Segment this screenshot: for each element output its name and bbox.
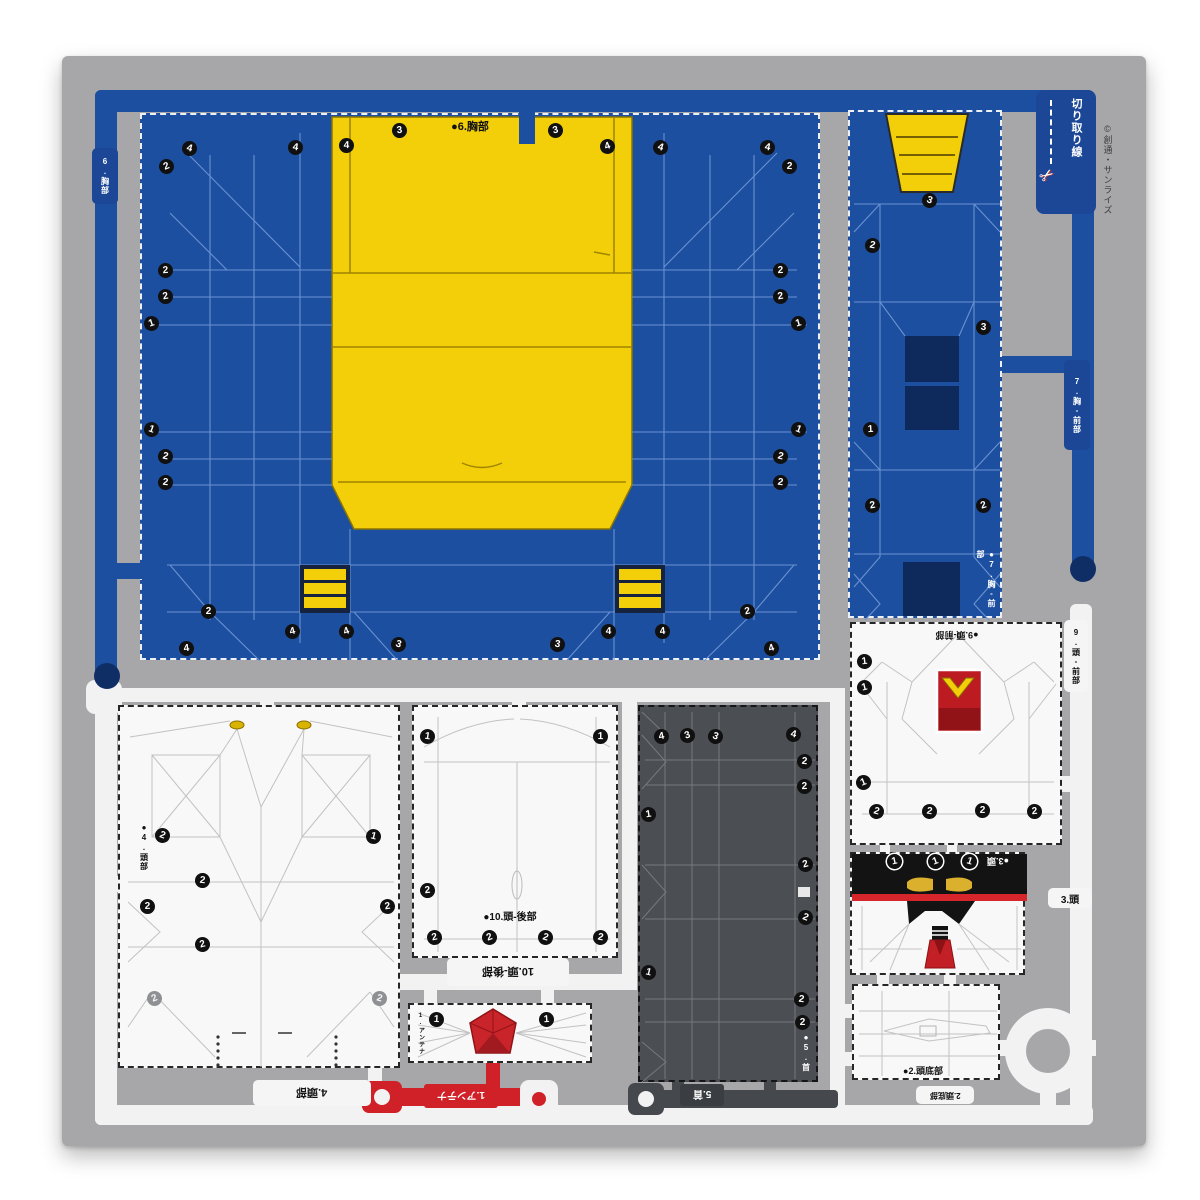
piece-chest-front [848,110,1002,618]
tab-head-part-label: 4.頭部 [296,1085,327,1101]
runner-ring [1005,1008,1091,1094]
neck-runner-plate: 5.首 [680,1084,724,1106]
label-head-back: ●10.頭-後部 [455,908,565,922]
cut-line-label: 切り取り線 [1068,98,1084,206]
runner-stub-left [112,563,144,579]
runner-white-mid [830,688,845,1108]
number-marker: 2 [795,1015,810,1030]
label-neck: ●5.首 [799,1028,813,1076]
tab-chest-front-label: 7.胸-前部 [1072,377,1083,434]
runner-white-bottom [95,1105,1093,1125]
piece-head-part [118,705,400,1068]
ring-stub-bottom [1040,1088,1056,1108]
tab-head-part: 4.頭部 [253,1080,371,1106]
label-antenna-tiny: 1.アンテナ [416,1012,426,1056]
tab-head-bottom-label: 2.頭底部 [930,1090,961,1101]
label-chest-front: ●7.胸-前部 [978,550,994,616]
fold-lines-neck [640,707,820,1084]
antenna-runner-label: 1.アンテナ [437,1089,485,1104]
scissors-icon: ✂ [1036,164,1059,189]
label-head-face: ●3.頭 [975,856,1021,868]
piece-neck [638,705,818,1082]
red-connector-dot [532,1092,546,1106]
runner-white-top [95,688,845,702]
tab-chest: 6.胸部 [92,148,118,204]
fold-lines-head-part [120,707,402,1070]
piece-head-face [850,852,1025,975]
copyright-text: ©創通・サンライズ [1100,94,1116,244]
fold-lines-chest [142,115,822,662]
cut-line-tab: ✂ 切り取り線 [1036,90,1096,214]
tab-head-back: 10.頭-後部 [447,958,569,986]
tab-head-back-label: 10.頭-後部 [482,964,534,980]
runner-dark-bar [640,1090,838,1108]
red-cap-hole [374,1089,390,1105]
tab-head-bottom: 2.頭底部 [916,1086,974,1104]
stub-w12 [840,1052,852,1066]
face-art [852,854,1027,977]
tab-head-front: 9.頭-前部 [1064,620,1088,692]
number-marker: 2 [201,604,216,619]
runner-white-left [95,688,117,1125]
stub-w11 [840,1004,852,1018]
antenna-runner-plate: 1.アンテナ [424,1084,498,1108]
label-head-front: ●9.頭-前部 [912,629,1002,642]
runner-white-inner-v [622,688,637,988]
piece-chest [140,113,820,660]
ring-stub-right [1084,1040,1096,1056]
dark-cap-hole [638,1091,654,1107]
label-head-bottom: ●2.頭底部 [880,1064,966,1076]
neck-runner-label: 5.首 [693,1088,711,1103]
runner-blue-right-cap [1070,556,1096,582]
runner-blue-top [95,90,1094,112]
runner-blue-left-cap [94,663,120,689]
tab-head-front-label: 9.頭-前部 [1071,628,1082,685]
tab-head-label: 3.頭 [1061,891,1079,906]
tab-chest-label: 6.胸部 [100,157,111,195]
page-background: 6.胸部 7.胸-前部 ✂ 切り取り線 ©創通・サンライズ 10.頭-後部 4.… [0,0,1200,1200]
cut-line-dashes [1050,100,1052,164]
fold-lines-chest-front [850,112,1004,620]
label-chest: ●6.胸部 [410,119,530,133]
label-head-part: ●4.頭部 [137,812,151,882]
tab-head: 3.頭 [1048,888,1092,908]
tab-chest-front: 7.胸-前部 [1064,360,1090,450]
